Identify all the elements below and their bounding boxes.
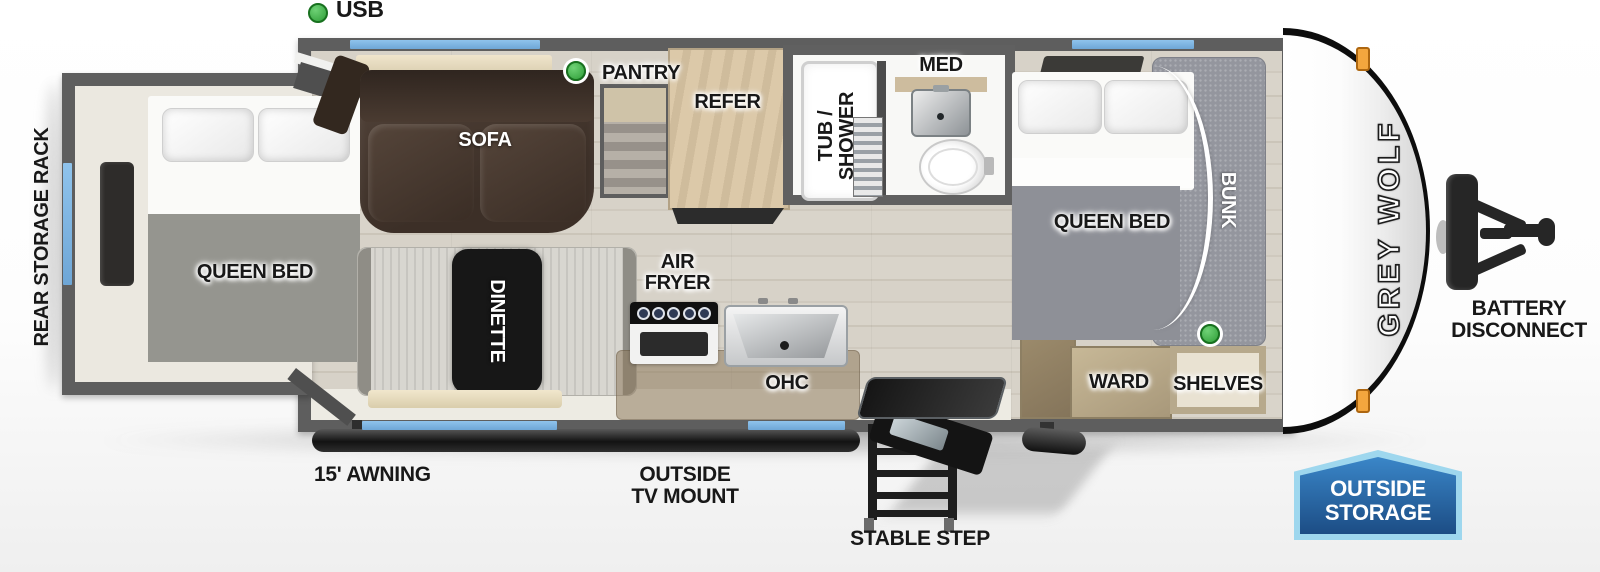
awning-label: 15' AWNING xyxy=(314,464,431,485)
ward-label: WARD xyxy=(1070,372,1168,393)
burner xyxy=(698,307,711,320)
usb-dot-sofa xyxy=(566,61,586,81)
pantry-label: PANTRY xyxy=(602,63,680,84)
window-top-right xyxy=(1072,40,1194,49)
refrigerator xyxy=(668,48,790,210)
window-bottom-right xyxy=(748,421,845,430)
rear-queen-bed xyxy=(148,96,360,362)
med-label: MED xyxy=(895,55,987,76)
battery-disconnect-label: BATTERY DISCONNECT xyxy=(1448,298,1590,342)
dinette-base-ledge xyxy=(368,390,562,408)
tub-shower-label: TUB / SHOWER xyxy=(814,66,860,206)
marker-light-bottom xyxy=(1356,389,1370,413)
outside-storage-badge: OUTSIDE STORAGE xyxy=(1294,450,1462,540)
bunk-curtain-arc xyxy=(1098,66,1213,330)
burner xyxy=(637,307,650,320)
usb-dot-bunk xyxy=(1200,324,1220,344)
ohc-label: OHC xyxy=(752,373,822,394)
pantry-cabinet xyxy=(600,84,670,198)
burner xyxy=(652,307,665,320)
entry-door-mat xyxy=(856,377,1008,419)
awning-tube xyxy=(312,429,860,452)
usb-dot-legend xyxy=(308,3,328,23)
sink-drain xyxy=(780,341,789,350)
sofa xyxy=(360,70,594,233)
rear-storage-rack-label: REAR STORAGE RACK xyxy=(31,127,53,347)
rear-storage-rack-unit xyxy=(100,162,134,286)
rear-queen-bed-label: QUEEN BED xyxy=(195,262,315,283)
sofa-label: SOFA xyxy=(430,130,540,151)
shelves-label: SHELVES xyxy=(1164,374,1272,395)
hitch-coupler-knob xyxy=(1538,218,1555,246)
step-rung xyxy=(868,492,957,499)
faucet-knob xyxy=(788,298,798,304)
pantry-shelves xyxy=(604,88,666,194)
rear-window xyxy=(63,163,72,285)
burner xyxy=(683,307,696,320)
bunk-label: BUNK xyxy=(1216,145,1240,255)
sink-basin xyxy=(733,314,839,358)
marker-light-top xyxy=(1356,47,1370,71)
dinette-label: DINETTE xyxy=(485,251,509,391)
burner xyxy=(667,307,680,320)
tv-mount-label: OUTSIDE TV MOUNT xyxy=(620,464,750,508)
kitchen-sink xyxy=(724,305,848,367)
bench-back xyxy=(358,248,371,395)
wardrobe-side xyxy=(1020,338,1076,419)
rear-bed-blanket xyxy=(148,214,360,362)
step-rung xyxy=(868,470,957,477)
bathroom-sink xyxy=(911,89,971,137)
toilet-hinge xyxy=(984,157,994,175)
outside-storage-badge-fill: OUTSIDE STORAGE xyxy=(1300,457,1456,534)
faucet-knob xyxy=(758,298,768,304)
step-rung xyxy=(868,510,957,517)
air-fryer-label: AIR FRYER xyxy=(630,252,725,294)
stable-step-label: STABLE STEP xyxy=(845,528,995,549)
toilet-seat xyxy=(928,148,978,186)
cooktop xyxy=(630,302,718,324)
toilet xyxy=(919,139,987,195)
brand-logo: GREY WOLF xyxy=(1368,88,1412,368)
pillow xyxy=(162,108,254,162)
floorplan-scene: USB QUEEN BED REAR STORAGE RACK SOFA PAN… xyxy=(0,0,1600,572)
usb-legend-label: USB xyxy=(336,0,384,20)
window-bottom-left xyxy=(362,421,557,430)
front-queen-bed-label: QUEEN BED xyxy=(1032,212,1192,233)
refrigerator-base xyxy=(672,208,784,224)
bathroom: TUB / SHOWER MED xyxy=(783,45,1015,205)
faucet xyxy=(933,85,949,92)
air-fryer-range xyxy=(630,302,718,364)
oven-door xyxy=(640,332,708,356)
refer-label: REFER xyxy=(680,92,775,113)
step-shadow xyxy=(889,448,1111,514)
sofa-back xyxy=(360,70,594,122)
pillow xyxy=(1018,80,1102,134)
window-top-left xyxy=(350,40,540,49)
drain xyxy=(937,113,944,120)
hitch-arm-lower xyxy=(1470,243,1527,277)
